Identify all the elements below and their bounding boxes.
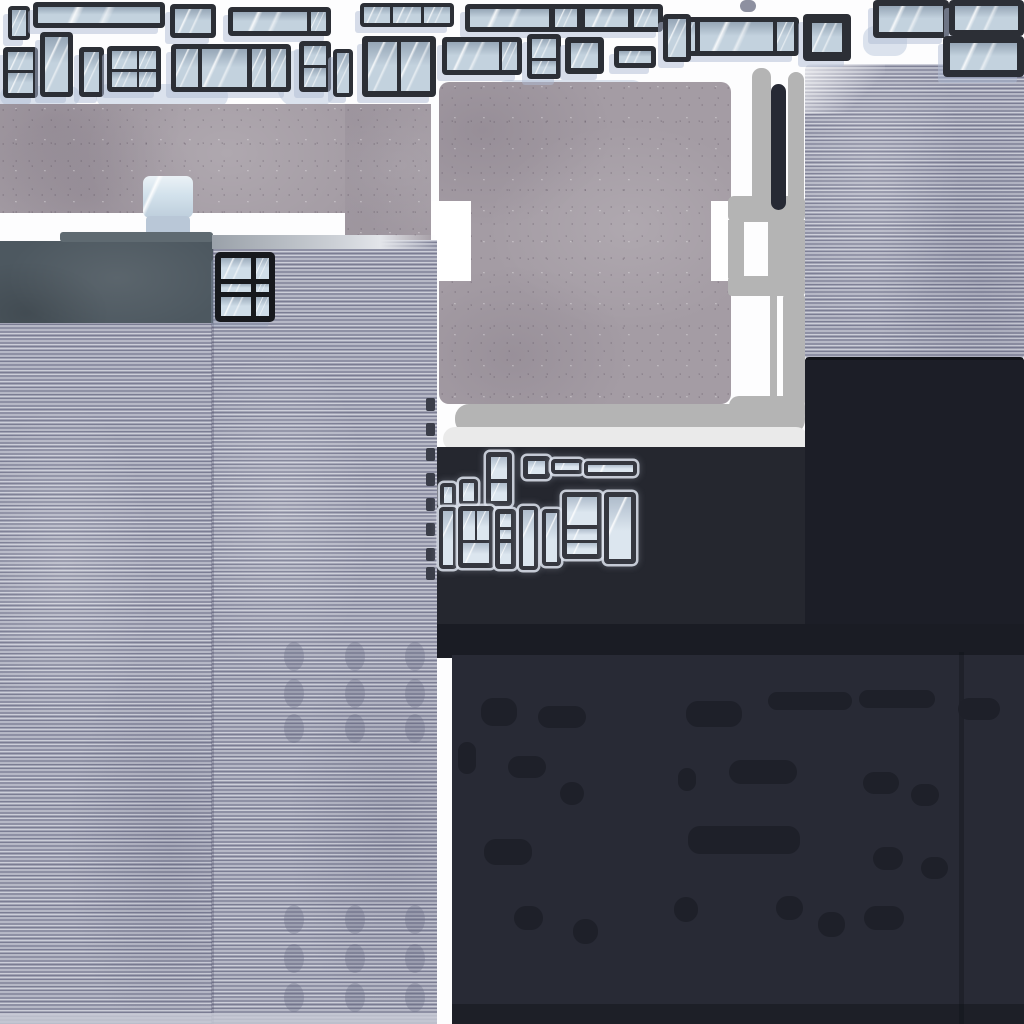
window-glass-area — [955, 6, 1018, 30]
glass-pane — [233, 12, 307, 31]
roof-vent-dash — [921, 857, 948, 879]
window — [565, 37, 604, 74]
window — [170, 4, 216, 38]
window-glass-area — [675, 22, 794, 51]
window — [873, 0, 949, 38]
glass-pane — [668, 19, 686, 57]
glass-pane — [634, 9, 658, 27]
window-glass-area — [523, 510, 534, 566]
glass-pane — [393, 7, 421, 23]
paint-stroke — [770, 294, 777, 406]
roof-vent-dash — [911, 784, 939, 806]
glass-pane — [532, 61, 556, 74]
window-glass-area — [555, 463, 579, 470]
rivet-mark — [405, 642, 425, 671]
rivet-mark — [405, 944, 425, 973]
window-glass-area — [567, 497, 597, 554]
rivet-mark — [284, 679, 304, 708]
rivet-mark — [284, 714, 304, 743]
glass-pane — [424, 7, 450, 23]
trim-bar — [212, 235, 436, 249]
roof-vent-dash — [818, 912, 845, 937]
paint-stroke — [752, 68, 771, 208]
window-glass-area — [528, 461, 545, 474]
window-glass-area — [609, 497, 631, 559]
corrugated-column-right — [212, 240, 437, 1024]
paint-stroke — [729, 396, 805, 424]
roof-vent-dash — [686, 701, 742, 727]
window-glass-area — [532, 39, 556, 74]
roof-vent-dash — [560, 782, 584, 805]
glass-pane — [444, 487, 452, 503]
window — [465, 4, 663, 32]
slate-header-block — [0, 241, 213, 323]
rivet-mark — [345, 714, 365, 743]
column-bottom-trim — [0, 1013, 437, 1024]
window-glass-area — [38, 7, 160, 23]
night-window — [523, 456, 550, 479]
window — [79, 47, 104, 97]
concrete-slab-left-step — [345, 104, 431, 240]
roof-vent-dash — [873, 847, 903, 870]
window — [943, 36, 1024, 77]
glass-pane — [304, 68, 326, 87]
window-glass-area — [463, 511, 489, 563]
rivet-mark — [284, 983, 304, 1012]
glass-pane — [202, 49, 247, 87]
glass-pane — [500, 530, 511, 540]
rivet-mark — [284, 905, 304, 934]
glass-pane — [463, 483, 474, 501]
window — [663, 14, 691, 62]
glass-pane — [619, 51, 651, 63]
roof-vent-dash — [768, 692, 852, 710]
glass-pane — [364, 7, 390, 23]
glass-pane — [112, 72, 137, 87]
window — [228, 7, 331, 36]
window — [3, 47, 38, 98]
paint-stroke — [728, 220, 744, 278]
window-glass-area — [950, 43, 1017, 70]
corrugated-column-left — [0, 322, 213, 1024]
window-glass-area — [444, 487, 452, 503]
roof-vent-dash — [514, 906, 543, 930]
roof-vent-dash — [863, 772, 899, 794]
vent-tick — [426, 423, 435, 436]
glass-pane — [176, 49, 198, 87]
window-glass-area — [463, 483, 474, 501]
window-glass-area — [443, 511, 453, 565]
glass-pane — [491, 483, 507, 501]
window-glass-area — [588, 465, 633, 472]
paint-stroke — [728, 276, 805, 296]
window — [8, 6, 30, 40]
window — [107, 46, 161, 92]
roof-vent-dash — [674, 897, 698, 922]
rivet-mark — [405, 679, 425, 708]
glass-pane — [304, 46, 326, 65]
window-glass-area — [500, 514, 511, 564]
window-glass-area — [233, 12, 326, 31]
glass-pane — [700, 22, 773, 51]
glass-pane — [567, 543, 597, 554]
night-window — [458, 506, 494, 568]
glass-pane — [491, 457, 507, 479]
roof-vent-dash — [538, 706, 586, 728]
glass-pane — [175, 9, 211, 33]
window-glass-area — [12, 10, 26, 36]
glass-pane — [45, 37, 68, 92]
window — [949, 0, 1024, 36]
roof-vent-dash — [864, 906, 904, 930]
glass-pane — [567, 497, 597, 525]
glass-pane — [955, 6, 1018, 30]
slate-lip — [60, 232, 213, 242]
navy-bar — [771, 84, 786, 210]
night-window — [495, 509, 516, 569]
night-window — [439, 507, 457, 569]
window — [362, 36, 436, 97]
window-glass-area — [84, 52, 99, 92]
glass-pane — [256, 258, 269, 279]
dark-roof-bottom-strip — [452, 1004, 1024, 1024]
roof-vent-dash — [458, 742, 476, 774]
window — [614, 46, 656, 68]
glass-pane — [585, 9, 628, 27]
window-glass-area — [879, 6, 943, 32]
glass-pane — [139, 51, 156, 69]
window-glass-area — [112, 51, 156, 87]
paint-stroke — [783, 294, 805, 406]
glass-pane — [447, 42, 499, 70]
glass-pane — [84, 52, 99, 92]
vent-tick — [426, 498, 435, 511]
window-glass-area — [470, 9, 658, 27]
window — [803, 14, 851, 61]
glass-pane — [252, 49, 266, 87]
texture-atlas — [0, 0, 1024, 1024]
vent-tick — [426, 523, 435, 536]
roof-vent-dash — [481, 698, 517, 726]
window-glass-area — [812, 23, 842, 52]
window — [360, 3, 454, 27]
window-glass-area — [368, 42, 430, 91]
dark-roof-band — [437, 624, 1024, 658]
night-window — [542, 509, 561, 566]
rivet-mark — [284, 642, 304, 671]
roof-vent-dash — [508, 756, 546, 778]
glass-pane — [463, 511, 475, 540]
glass-pane — [112, 51, 137, 69]
rivet-mark — [405, 905, 425, 934]
framed-window — [215, 252, 275, 322]
glass-pane — [311, 12, 326, 31]
window-glass-area — [619, 51, 651, 63]
glass-pane — [12, 10, 26, 36]
roof-vent-dash — [958, 698, 1000, 720]
glass-pane — [528, 461, 545, 474]
glass-pane — [879, 6, 943, 32]
glass-pane — [555, 463, 579, 470]
window — [33, 2, 165, 28]
glass-pane — [546, 513, 557, 562]
glass-pane — [8, 73, 33, 93]
glass-pane — [532, 39, 556, 58]
vent-tick — [426, 567, 435, 580]
night-window — [519, 506, 538, 570]
glass-pane — [500, 543, 511, 565]
glass-pane — [571, 43, 598, 68]
vent-tick — [426, 473, 435, 486]
highlight-fade — [805, 64, 885, 114]
window-glass-area — [447, 42, 517, 70]
glass-pane — [502, 42, 517, 70]
rivet-mark — [405, 983, 425, 1012]
window-glass-area — [546, 513, 557, 562]
glass-pane — [401, 42, 430, 91]
glass-pane — [139, 72, 156, 87]
glass-pane — [221, 258, 251, 279]
glass-pane — [523, 510, 534, 566]
window-glass-area — [175, 9, 211, 33]
concrete-slab-main — [439, 82, 731, 404]
night-window — [440, 483, 456, 507]
window — [40, 32, 73, 97]
glass-pane — [777, 22, 794, 51]
rivet-mark — [405, 714, 425, 743]
glass-pane — [221, 284, 251, 292]
window-glass-area — [571, 43, 598, 68]
rivet-mark — [345, 944, 365, 973]
glass-pane — [256, 284, 269, 292]
window-glass-area — [221, 258, 269, 316]
night-window — [604, 492, 636, 564]
window-glass-area — [176, 49, 286, 87]
window-glass-area — [45, 37, 68, 92]
glass-pane — [271, 49, 286, 87]
glass-pane — [368, 42, 397, 91]
night-window — [562, 492, 602, 559]
glass-pane — [470, 9, 549, 27]
rooftop-unit-top — [143, 176, 193, 218]
paint-dot — [740, 0, 756, 12]
dark-roof-region-right — [805, 360, 1024, 650]
glass-pane — [950, 43, 1017, 70]
glass-pane — [221, 297, 251, 316]
vent-tick — [426, 548, 435, 561]
cutout-notch — [431, 201, 471, 281]
window-glass-area — [668, 19, 686, 57]
glass-pane — [463, 543, 489, 563]
glass-pane — [609, 497, 631, 559]
glass-pane — [477, 511, 489, 540]
roof-vent-dash — [859, 690, 935, 708]
window — [442, 37, 522, 75]
roof-vent-dash — [729, 760, 797, 784]
glass-pane — [588, 465, 633, 472]
glass-pane — [500, 514, 511, 527]
night-window — [486, 452, 512, 506]
window-glass-area — [337, 53, 349, 93]
roof-vent-dash — [688, 826, 800, 854]
glass-pane — [812, 23, 842, 52]
window-glass-area — [364, 7, 450, 23]
panel-seam — [211, 240, 214, 1024]
glass-pane — [256, 297, 269, 316]
glass-pane — [567, 529, 597, 540]
rivet-mark — [345, 983, 365, 1012]
rivet-mark — [284, 944, 304, 973]
glass-pane — [555, 9, 578, 27]
night-window — [584, 461, 637, 476]
glass-pane — [443, 511, 453, 565]
roof-vent-dash — [776, 896, 803, 920]
night-window — [551, 459, 583, 474]
glass-pane — [337, 53, 349, 93]
glass-pane — [38, 7, 160, 23]
window — [171, 44, 291, 92]
window — [527, 34, 561, 79]
rivet-mark — [345, 679, 365, 708]
rivet-mark — [345, 905, 365, 934]
vent-tick — [426, 398, 435, 411]
window-glass-area — [304, 46, 326, 87]
roof-vent-dash — [484, 839, 532, 865]
roof-vent-dash — [678, 768, 696, 791]
paint-stroke — [728, 196, 805, 222]
night-window — [459, 479, 478, 505]
vent-tick — [426, 448, 435, 461]
window-glass-area — [8, 52, 33, 93]
paint-stroke — [768, 220, 805, 278]
roof-vent-dash — [573, 919, 598, 944]
window-glass-area — [491, 457, 507, 501]
window — [333, 49, 353, 97]
rivet-mark — [345, 642, 365, 671]
window — [299, 41, 331, 92]
glass-pane — [8, 52, 33, 70]
